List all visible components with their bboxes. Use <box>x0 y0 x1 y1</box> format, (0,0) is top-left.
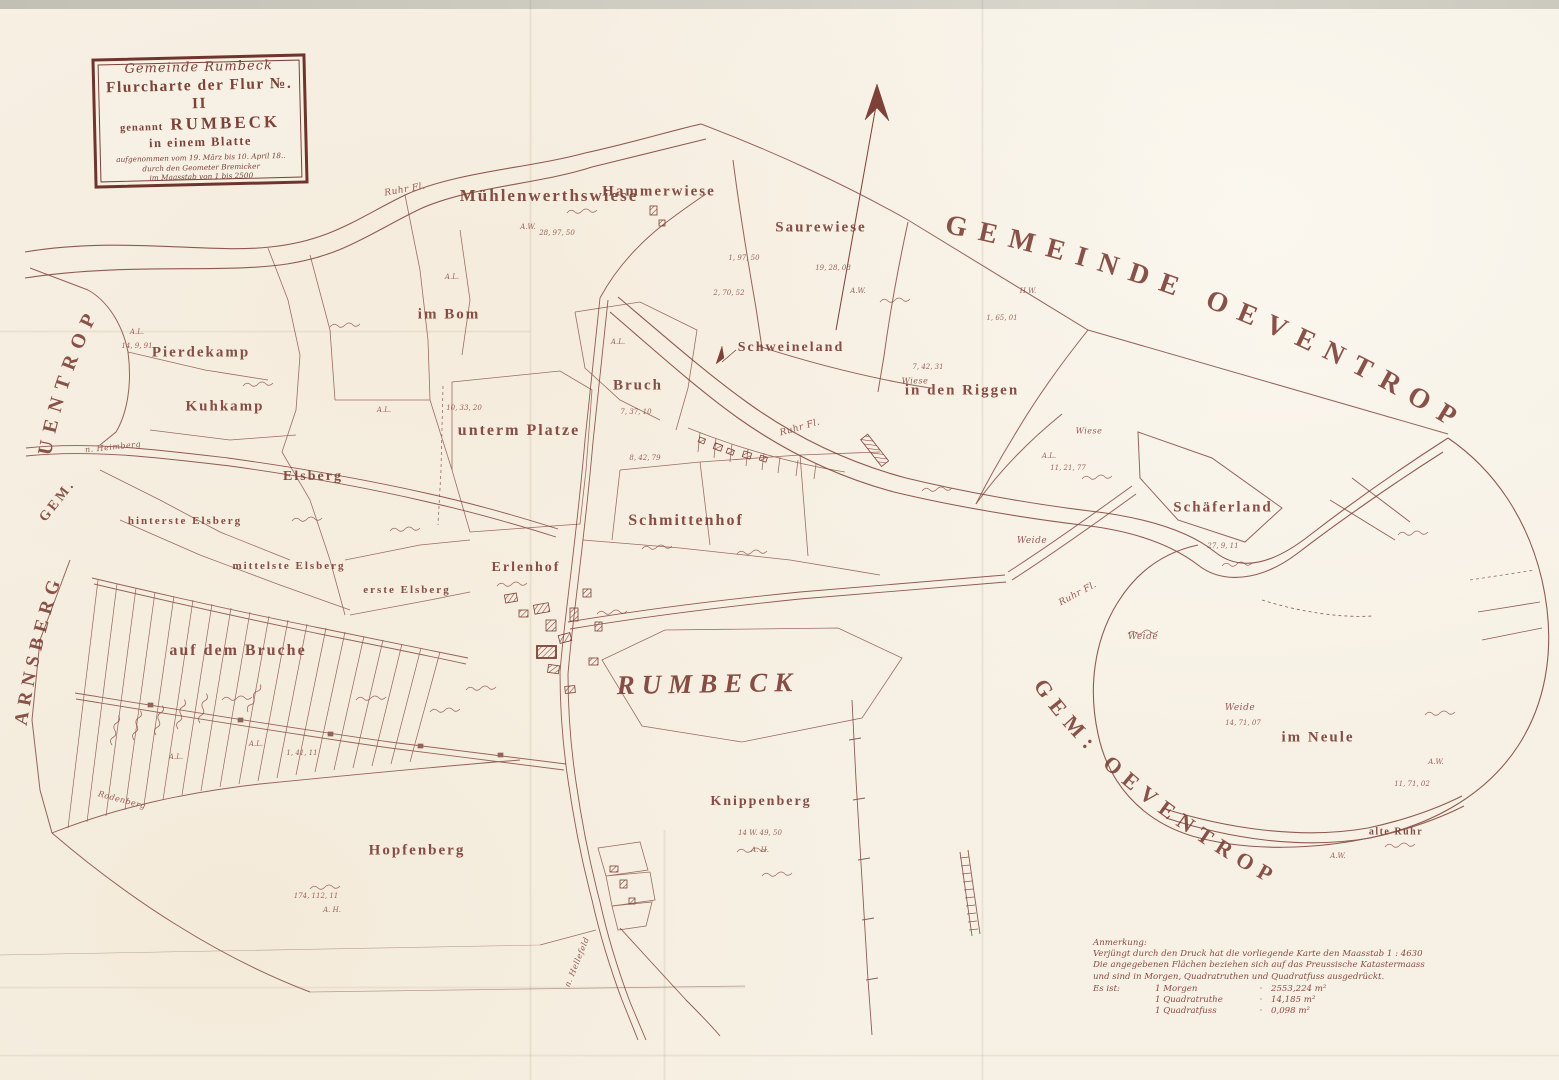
label-gem: GEM. <box>37 477 79 525</box>
parcel-annotation: 174, 112, 11 <box>294 892 339 900</box>
parcel-annotation: 14 W. 49, 50 <box>738 829 782 837</box>
place-label-im-neule: im Neule <box>1281 730 1354 747</box>
parcel-annotation: A.L. <box>169 753 183 761</box>
note-value: 2553,224 m² <box>1271 984 1326 995</box>
note-sep: · <box>1251 995 1271 1006</box>
parcel-annotation: A.L. <box>445 273 459 281</box>
place-label-elsberg: Elsberg <box>283 469 343 485</box>
parcel-annotation: 7, 42, 31 <box>912 363 943 371</box>
place-label-mittelste-elsberg: mittelste Elsberg <box>232 560 345 572</box>
place-label-bruch: Bruch <box>613 378 663 395</box>
parcel-annotation: A. H. <box>323 906 341 914</box>
road-lines <box>26 194 1006 1040</box>
place-label-hammerwiese: Hammerwiese <box>602 184 716 201</box>
parcel-annotation: 1, 97, 50 <box>728 254 759 262</box>
note-line: Verjüngt durch den Druck hat die vorlieg… <box>1093 949 1443 960</box>
note-sep: · <box>1251 1006 1271 1017</box>
parcel-annotation: 11, 71, 02 <box>1394 780 1430 788</box>
parcel-annotation: 27, 9, 11 <box>1207 542 1238 550</box>
note-line: und sind in Morgen, Quadratruthen und Qu… <box>1093 972 1443 983</box>
parcel-annotation: 10, 33, 20 <box>446 404 482 412</box>
place-label-erlenhof: Erlenhof <box>492 560 561 576</box>
place-label-alte-ruhr: alte Ruhr <box>1369 827 1423 838</box>
place-label-schaeferland: Schäferland <box>1173 500 1273 517</box>
cartouche-called: genannt <box>120 122 163 134</box>
parcel-annotation: A.L. <box>377 406 391 414</box>
script-label-wiese: Wiese <box>902 377 929 386</box>
place-label-kuhkamp: Kuhkamp <box>185 399 264 416</box>
parcel-annotation: 19, 28, 08 <box>815 264 851 272</box>
note-sep: · <box>1251 984 1271 995</box>
label-gemeinde-oeventrop: GEMEINDE OEVENTROP <box>943 209 1472 438</box>
annotation-note: Anmerkung: Verjüngt durch den Druck hat … <box>1093 938 1443 1017</box>
script-label-weide: Weide <box>1128 632 1158 642</box>
place-label-hinterste-elsberg: hinterste Elsberg <box>128 515 242 527</box>
place-label-saurewiese: Saurewiese <box>775 220 866 237</box>
parcel-annotation: 1, 65, 01 <box>986 314 1017 322</box>
parcel-annotation: A.L. <box>249 740 263 748</box>
parcel-annotation: 7, 37, 10 <box>620 408 651 416</box>
buildings <box>504 206 888 904</box>
place-label-im-bom: im Bom <box>418 307 480 324</box>
parcel-annotation: A.W. <box>1428 758 1443 766</box>
place-label-schmittenhof: Schmittenhof <box>628 512 744 530</box>
parcel-annotation: 1, 41, 11 <box>286 749 317 757</box>
parcel-annotation: A.W. <box>850 287 865 295</box>
cartouche-name: genannt RUMBECK <box>120 112 281 136</box>
place-label-hopfenberg: Hopfenberg <box>369 843 466 860</box>
cartouche-sheet: in einem Blatte <box>149 134 252 152</box>
cartouche-community: Gemeinde Rumbeck <box>124 58 273 77</box>
parcel-annotation: A.W. <box>520 223 535 231</box>
parcel-annotation: A.L. <box>130 328 144 336</box>
place-label-knippenberg: Knippenberg <box>710 794 811 810</box>
parcel-annotation: A.W. <box>1330 852 1345 860</box>
parcel-annotation: A.L. <box>1042 452 1056 460</box>
parcel-annotation: 14, 9, 91 <box>121 342 152 350</box>
parcel-annotation: 11, 21, 77 <box>1050 464 1086 472</box>
script-label-weide: Weide <box>1017 536 1047 546</box>
place-label-pierdekamp: Pierdekamp <box>152 345 250 362</box>
cartouche-rumbeck: RUMBECK <box>170 112 280 134</box>
place-label-erste-elsberg: erste Elsberg <box>363 584 450 596</box>
note-title: Anmerkung: <box>1093 938 1443 949</box>
cartouche-title: Flurcharte der Flur №. II <box>105 75 294 116</box>
parcel-annotation: H.W. <box>1020 287 1037 295</box>
note-intro: Es ist: <box>1093 984 1120 995</box>
note-value: 0,098 m² <box>1271 1006 1310 1017</box>
map-sheet: GEMEINDE OEVENTROP GEM: OEVENTROP UENTRO… <box>0 0 1559 1080</box>
script-label-weide: Weide <box>1225 703 1255 713</box>
cartouche: Gemeinde Rumbeck Flurcharte der Flur №. … <box>91 53 308 188</box>
place-label-schweineland: Schweineland <box>738 340 844 356</box>
note-line: Die angegebenen Flächen beziehen sich au… <box>1093 960 1443 971</box>
parcel-annotation: 28, 97, 50 <box>539 229 575 237</box>
note-term: 1 Quadratfuss <box>1155 1006 1251 1017</box>
note-term: 1 Morgen <box>1155 984 1251 995</box>
parcel-annotation: 14, 71, 07 <box>1225 719 1261 727</box>
place-label-unterm-platze: unterm Platze <box>458 422 580 440</box>
label-uentrop: UENTROP <box>34 303 104 457</box>
cartouche-inner-border: Gemeinde Rumbeck Flurcharte der Flur №. … <box>98 60 303 183</box>
parcel-annotation: 8, 42, 79 <box>629 454 660 462</box>
parcel-annotation: 2, 70, 52 <box>713 289 744 297</box>
note-term: 1 Quadratruthe <box>1155 995 1251 1006</box>
strip-parcels <box>52 578 566 833</box>
label-arnsberg: ARNSBERG <box>11 572 67 727</box>
parcel-annotation: A. H. <box>751 846 769 854</box>
place-label-rumbeck: RUMBECK <box>616 667 799 701</box>
script-label-wiese: Wiese <box>1076 427 1103 436</box>
note-value: 14,185 m² <box>1271 995 1315 1006</box>
place-label-auf-dem-bruche: auf dem Bruche <box>169 642 306 660</box>
parcel-annotation: A.L. <box>611 338 625 346</box>
